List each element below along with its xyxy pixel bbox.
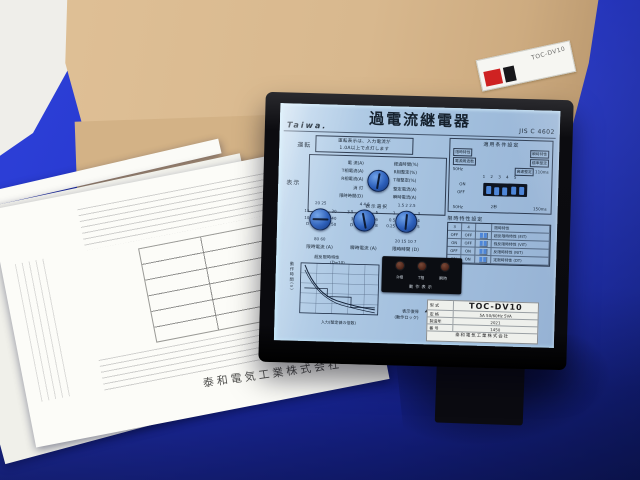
graph-curves: [299, 262, 380, 318]
red-mark: [483, 68, 503, 86]
display-options-left: 電 流(A) T相電流(A) R相電流(A) 消 灯 限時時間(D): [311, 159, 364, 201]
dip-icon: [475, 256, 491, 264]
indicator-caption: 動作表示: [381, 283, 461, 291]
nameplate: 型 式 TOC-DV10 定 格 5A 50/60Hz 5VA 製造年 2021…: [426, 299, 539, 344]
led-t-phase: [417, 261, 427, 271]
value-110ms: 110ms: [535, 169, 549, 174]
condition-settings-box: 適用条件設定 限時特性 電源周波数 50Hz 瞬時特性 標準整定 高速整定 11…: [448, 138, 554, 215]
product-photo: TOC-DV10 泰和電気工業株式会社 Taiwa. 過電流継電器 JIS C …: [0, 0, 640, 480]
run-note: 運転表示は、入力電流が 1.0A以上で点灯します: [315, 135, 413, 155]
nameplate-company: 泰和電気工業株式会社: [427, 331, 537, 342]
knob-pointer: [404, 214, 408, 230]
characteristic-name: 定限時特性 (DT): [491, 256, 549, 266]
on-label: ON: [459, 181, 465, 186]
led-r-phase: [394, 260, 404, 270]
knob-pointer: [376, 173, 381, 189]
run-label: 運転: [297, 140, 311, 149]
display-label: 表示: [286, 177, 300, 186]
graph-xlabel: 入力(整定値の倍数): [298, 319, 378, 327]
knob-pointer: [362, 213, 367, 229]
dial-knob: [309, 208, 332, 231]
led-instant: [439, 262, 449, 272]
dial-time-multiplier: 1.5 2 2.5 1 0.5 0.25 3 4 5 20 15 10 7 限時…: [382, 202, 429, 255]
front-panel: Taiwa. 過電流継電器 JIS C 4602 運転 運転表示は、入力電流が …: [274, 103, 561, 348]
dip-switch-bank: [483, 183, 527, 197]
nameplate-key: 番 号: [427, 324, 453, 331]
jis-standard-label: JIS C 4602: [519, 128, 555, 136]
value-150ms: 150ms: [533, 206, 547, 211]
overcurrent-relay-device: Taiwa. 過電流継電器 JIS C 4602 運転 運転表示は、入力電流が …: [258, 92, 573, 370]
tag-instant-characteristic: 瞬時特性: [530, 150, 549, 159]
nameplate-key: 型 式: [428, 300, 454, 310]
value-50hz-bottom: 50Hz: [453, 204, 463, 209]
black-mark: [503, 66, 517, 83]
operation-indicator-box: R相 T相 瞬時 動作表示: [381, 256, 462, 294]
nameplate-key: 製造年: [427, 317, 453, 324]
reset-label: 表示復帰 (動作ロック): [383, 308, 419, 320]
dial-knob: [353, 209, 376, 232]
display-options-right: 経過時間(%) R相整定(%) T相整定(%) 整定電流(A) 瞬時電流(A): [393, 161, 446, 203]
condition-left-group: 限時特性 電源周波数 50Hz: [453, 148, 498, 172]
value-50hz: 50Hz: [453, 166, 463, 171]
display-selector-knob: [367, 170, 390, 193]
value-2s: 2秒: [491, 204, 498, 210]
dial-knob: [395, 210, 418, 233]
tag-standard-setting: 標準整定: [530, 159, 549, 168]
knob-pointer: [312, 218, 328, 220]
characteristic-graph: 超反限時特性 (D=10) 動作時間(s) 入力(整定値の倍数): [298, 254, 380, 326]
dial-caption: 限時時間 (D): [374, 246, 436, 254]
condition-right-group: 瞬時特性 標準整定 高速整定 110ms: [503, 149, 550, 177]
off-label: OFF: [457, 189, 465, 194]
graph-ylabel: 動作時間(s): [288, 261, 295, 290]
nameplate-key: 定 格: [428, 310, 454, 317]
box-label-model: TOC-DV10: [531, 45, 567, 61]
fine-print-columns: [15, 258, 75, 402]
tag-time-characteristic: 限時特性: [453, 148, 472, 157]
tag-frequency: 電源周波数: [453, 157, 476, 166]
